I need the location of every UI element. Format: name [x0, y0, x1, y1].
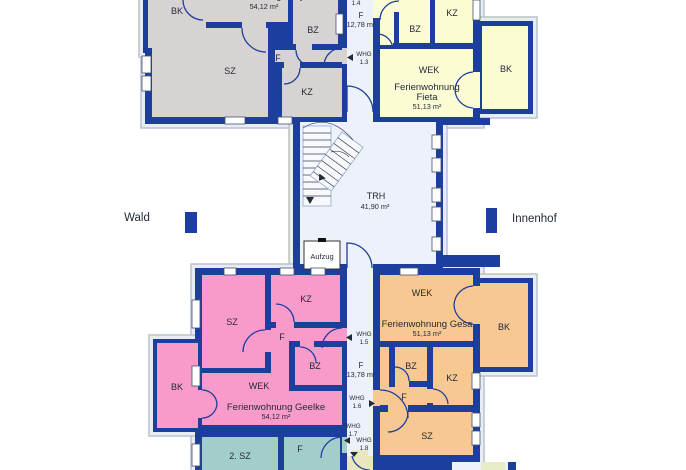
hall-f-area: 12,78 m² [347, 20, 376, 29]
room-bk-label: BK [500, 64, 512, 74]
stairwell: Aufzug [300, 118, 500, 271]
room-kz-label: KZ [446, 8, 458, 18]
room-kz-label: KZ [446, 373, 458, 383]
innenhof-label: Innenhof [512, 213, 558, 225]
room-bk-label: BK [171, 382, 183, 392]
room-sz2-label: 2. SZ [229, 451, 251, 461]
room-bz-label: BZ [307, 25, 319, 35]
room-sz-label: SZ [224, 66, 236, 76]
room-bz-floor [293, 0, 338, 44]
svg-text:WHG: WHG [356, 331, 371, 338]
room-wek-label: WEK [249, 381, 270, 391]
wald-marker [185, 212, 197, 233]
apartment-gesa [373, 275, 528, 455]
whg-1-4-label: 1.4 [352, 0, 361, 7]
svg-text:WHG: WHG [345, 423, 360, 430]
whg-1-3-label: 1.3 [360, 59, 369, 66]
elevator-door-mark [318, 238, 326, 242]
room-bk-label: BK [171, 6, 183, 16]
room-f-label: F [275, 53, 281, 63]
apartment-lower-partial [202, 437, 347, 470]
room-bz-label: BZ [309, 361, 321, 371]
svg-text:WHG: WHG [356, 51, 371, 58]
whg-1-6-label: 1.6 [353, 403, 362, 410]
room-kz-label: KZ [300, 294, 312, 304]
room-sz-floor [152, 28, 268, 117]
apartment-area: 54,12 m² [262, 412, 291, 421]
hall-f-label: F [359, 361, 364, 370]
room-bk-label: BK [498, 322, 510, 332]
room-bz-label: BZ [405, 361, 417, 371]
hall-f-area: 13,78 m² [347, 370, 376, 379]
room-f-floor [284, 437, 340, 470]
elevator: Aufzug [304, 238, 340, 269]
room-f-label: F [297, 444, 303, 454]
room-kz-floor [380, 0, 473, 45]
room-wek-label: WEK [419, 65, 440, 75]
whg-1-8-label: 1.8 [360, 445, 369, 452]
whg-1-5-label: 1.5 [360, 339, 369, 346]
room-kz-label: KZ [301, 87, 313, 97]
apartment-area: 51,13 m² [413, 102, 442, 111]
svg-text:WHG: WHG [356, 437, 371, 444]
apartment-area: 54,12 m² [250, 2, 279, 11]
elevator-label: Aufzug [310, 252, 333, 261]
wald-label: Wald [124, 212, 150, 224]
svg-text:WHG: WHG [349, 395, 364, 402]
room-bz-label: BZ [409, 24, 421, 34]
floorplan-canvas: Aufzug [0, 0, 686, 470]
hall-f-label: F [359, 11, 364, 20]
cutoff-strip [440, 462, 516, 470]
innenhof-marker [486, 208, 497, 233]
room-wek-label: WEK [412, 288, 433, 298]
apartment-area: 51,13 m² [413, 329, 442, 338]
apartment-fenja [148, 0, 347, 117]
room-f-label: F [279, 332, 285, 342]
room-sz-label: SZ [421, 431, 433, 441]
trh-area: 41,90 m² [361, 202, 390, 211]
room-sz-label: SZ [226, 317, 238, 327]
floorplan-svg: Aufzug [0, 0, 686, 470]
room-f-label: F [401, 392, 407, 402]
trh-label: TRH [367, 191, 386, 201]
